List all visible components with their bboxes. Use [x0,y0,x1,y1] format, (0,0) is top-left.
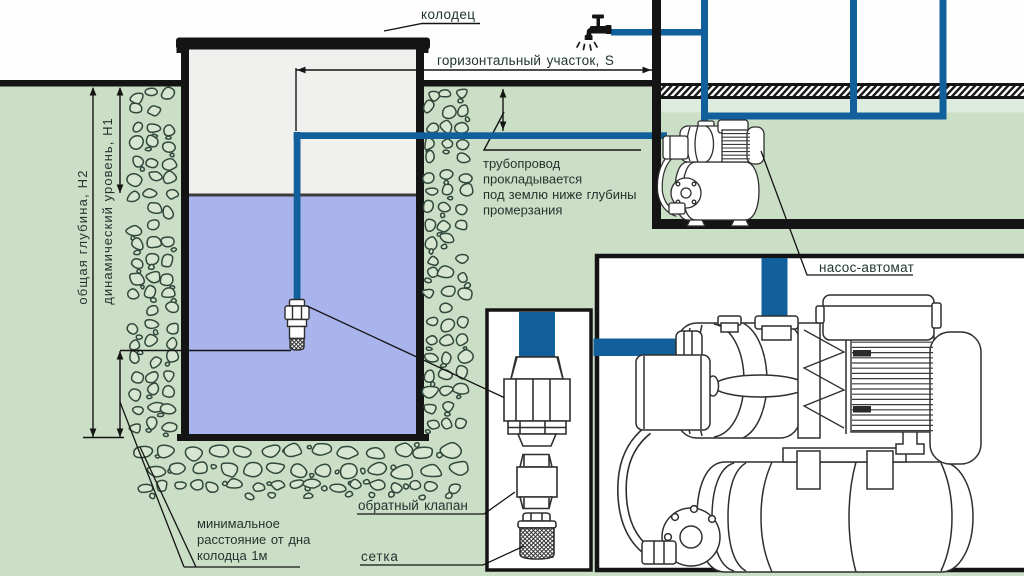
svg-text:динамический уровень, Н1: динамический уровень, Н1 [100,117,115,305]
svg-text:колодец: колодец [421,7,475,22]
svg-text:насос-автомат: насос-автомат [819,260,914,275]
svg-text:сетка: сетка [361,549,399,564]
svg-text:общая глубина, Н2: общая глубина, Н2 [75,169,90,304]
svg-text:горизонтальный участок, S: горизонтальный участок, S [437,53,614,68]
svg-text:обратный клапан: обратный клапан [358,498,468,513]
